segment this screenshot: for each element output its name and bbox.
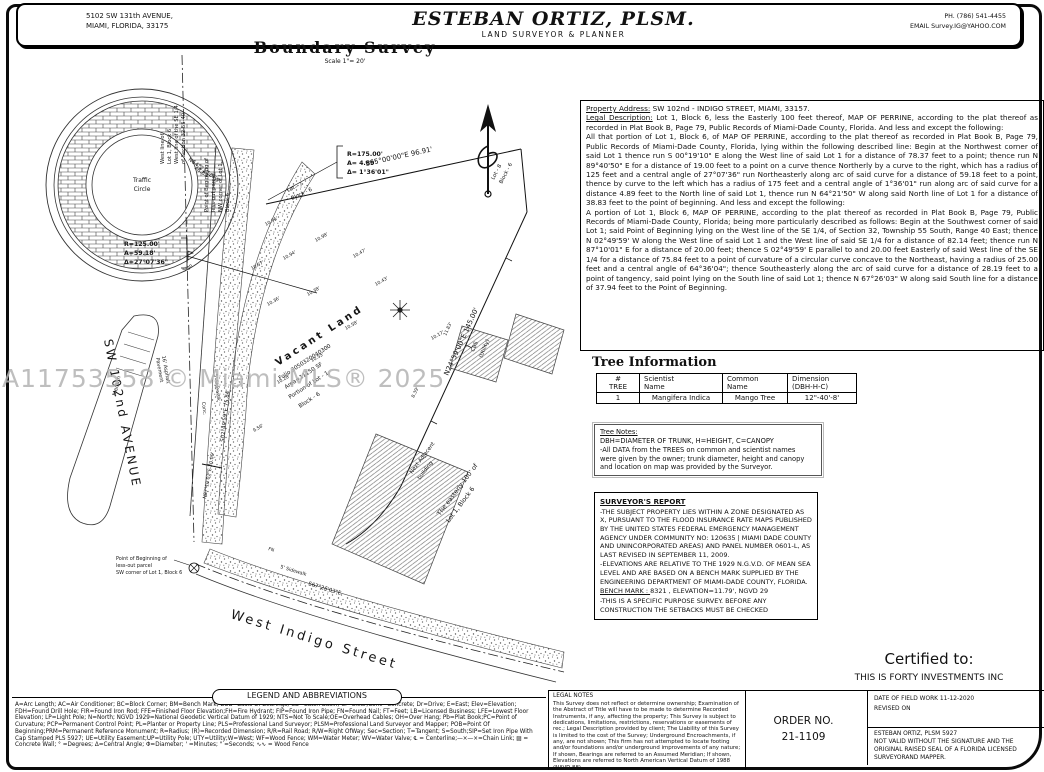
svg-text:of Section 32-55-40: of Section 32-55-40 (181, 113, 187, 164)
tree-info-table: #TREE ScientistName CommonName Dimension… (596, 373, 857, 404)
svg-text:Block 6: Block 6 (225, 193, 231, 212)
legal-description-box: Property Address: SW 102nd - INDIGO STRE… (580, 100, 1044, 351)
surveyor-signature-line: ESTEBAN ORTIZ, PLSM 5927 (874, 731, 1039, 739)
legal-notes-title: LEGAL NOTES (553, 693, 741, 700)
firm-email: EMAIL Survey.IG@YAHOO.COM (801, 22, 1006, 32)
legend-title-tab: LEGEND AND ABBREVIATIONS (212, 689, 402, 705)
firm-title-block: ESTEBAN ORTIZ, PLSM. LAND SURVEYOR & PLA… (306, 5, 801, 39)
spot-elevation: 10.98' (314, 231, 329, 243)
report-elevations: -ELEVATIONS ARE RELATIVE TO THE 1929 N.G… (600, 560, 812, 586)
firm-address: 5102 SW 131th AVENUE, MIAMI, FLORIDA, 33… (18, 5, 306, 32)
firm-contact: PH. (786) 541-4455 EMAIL Survey.IG@YAHOO… (801, 5, 1020, 32)
spot-elevation: 10.47' (352, 247, 367, 259)
curve-b-arc: A=59.18' (124, 250, 156, 257)
report-benchmark: BENCH MARK : 8321 , ELEVATION=11.79', NG… (600, 587, 812, 596)
survey-sheet: 5102 SW 131th AVENUE, MIAMI, FLORIDA, 33… (0, 0, 1044, 772)
tree-notes-body: DBH=DIAMETER OF TRUNK, H=HEIGHT, C=CANOP… (600, 437, 816, 472)
legend-zone: LEGEND AND ABBREVIATIONS A=Arc Length; A… (12, 697, 546, 766)
fn-label: FN (267, 546, 274, 553)
order-number-box: ORDER NO. 21-1109 (740, 690, 868, 765)
spot-elevation: 11.83' (442, 322, 453, 337)
surveyors-report-box: SURVEYOR'S REPORT -THE SUBJECT PROPERTY … (594, 492, 818, 620)
letterhead: 5102 SW 131th AVENUE, MIAMI, FLORIDA, 33… (16, 3, 1022, 47)
order-label: ORDER NO. (740, 714, 867, 730)
tree-table-header: #TREE ScientistName CommonName Dimension… (597, 374, 857, 393)
spot-elevation: 10.38' (306, 285, 321, 297)
legal-notes-box: LEGAL NOTES This Survey does not reflect… (548, 690, 746, 770)
curve-a-delta: Δ= 1°36'01" (347, 168, 389, 176)
pob-nw-note: Point of Beginning of less-out parcel NW… (204, 158, 231, 212)
legal-description-p3: A portion of Lot 1, Block 6, MAP OF PERR… (586, 208, 1038, 293)
svg-text:Lot 1, Block 6: Lot 1, Block 6 (167, 129, 173, 164)
north-arrow-icon (478, 104, 497, 197)
traffic-circle-label: Traffic (132, 177, 151, 184)
spot-elevations: 10.96' 10.57' 10.94' 10.98' 10.47' 10.36… (250, 215, 454, 433)
mls-watermark: A11753558 © Miami MLS® 2025 (2, 364, 445, 393)
tree-table-row: 1 Mangifera Indica Mango Tree 12"-40'-8' (597, 393, 857, 404)
curve-b-delta: Δ=27°07'36" (124, 258, 168, 266)
report-purpose: -THIS IS A SPECIFIC PURPOSE SURVEY. BEFO… (600, 597, 812, 614)
tree-info-title: Tree Information (592, 355, 717, 370)
property-address: Property Address: SW 102nd - INDIGO STRE… (586, 104, 1038, 113)
certified-block: Certified to: THIS IS FORTY INVESTMENTS … (826, 650, 1032, 683)
svg-text:Point of Beginning of: Point of Beginning of (116, 556, 167, 562)
mango-tree-symbol (390, 300, 410, 320)
svg-text:Point of Beginning of: Point of Beginning of (204, 158, 210, 212)
field-work-date: DATE OF FIELD WORK 11-12-2020 (874, 694, 1039, 704)
traffic-circle-label2: Circle (134, 186, 151, 193)
certified-label: Certified to: (826, 650, 1032, 668)
validity-box: ESTEBAN ORTIZ, PLSM 5927 NOT VALID WITHO… (868, 727, 1044, 772)
firm-address-line1: 5102 SW 131th AVENUE, (86, 12, 306, 22)
spot-elevation: 9.56' (252, 423, 265, 434)
tree-notes-title: Tree Notes: (600, 428, 816, 437)
svg-text:West line of the SE 1/4: West line of the SE 1/4 (174, 105, 180, 164)
svg-text:less-out parcel: less-out parcel (116, 563, 152, 569)
tree-notes-box: Tree Notes: DBH=DIAMETER OF TRUNK, H=HEI… (594, 424, 822, 476)
surveyors-report-title: SURVEYOR'S REPORT (600, 497, 812, 507)
svg-text:West line of: West line of (160, 133, 166, 164)
legal-description-p2: All that portion of Lot 1, Block 6, of M… (586, 132, 1038, 207)
curve-b-radius: R=125.00' (124, 241, 160, 248)
svg-text:SW corner of Lot 1, Block 6: SW corner of Lot 1, Block 6 (116, 570, 182, 576)
certified-name: THIS IS FORTY INVESTMENTS INC (826, 673, 1032, 683)
order-number: 21-1109 (740, 730, 867, 746)
legal-description-p1: Legal Description: Lot 1, Block 6, less … (586, 113, 1038, 132)
firm-name: ESTEBAN ORTIZ, PLSM. (306, 8, 801, 30)
legal-notes-body: This Survey does not reflect or determin… (553, 701, 741, 771)
spot-elevation: 10.94' (282, 249, 297, 261)
spot-elevation: 10.36' (266, 295, 281, 307)
report-flood-zone: -THE SUBJECT PROPERTY LIES WITHIN A ZONE… (600, 508, 812, 560)
firm-phone: PH. (786) 541-4455 (801, 12, 1006, 22)
revised-on: REVISED ON (874, 704, 1039, 714)
pob-sw-note: Point of Beginning of less-out parcel SW… (116, 556, 199, 576)
firm-address-line2: MIAMI, FLORIDA, 33175 (86, 22, 306, 32)
building-hatch-2 (504, 314, 564, 374)
spot-elevation: 10.43' (374, 275, 389, 287)
legend-abbreviations: A=Arc Length; AC=Air Conditioner; BC=Blo… (12, 698, 546, 749)
conc-label: Conc. (200, 402, 208, 416)
validity-note: NOT VALID WITHOUT THE SIGNATURE AND THE … (874, 739, 1039, 763)
svg-text:less-out parcel: less-out parcel (211, 174, 217, 212)
svg-text:NW corner of Lot 1,: NW corner of Lot 1, (218, 161, 224, 212)
